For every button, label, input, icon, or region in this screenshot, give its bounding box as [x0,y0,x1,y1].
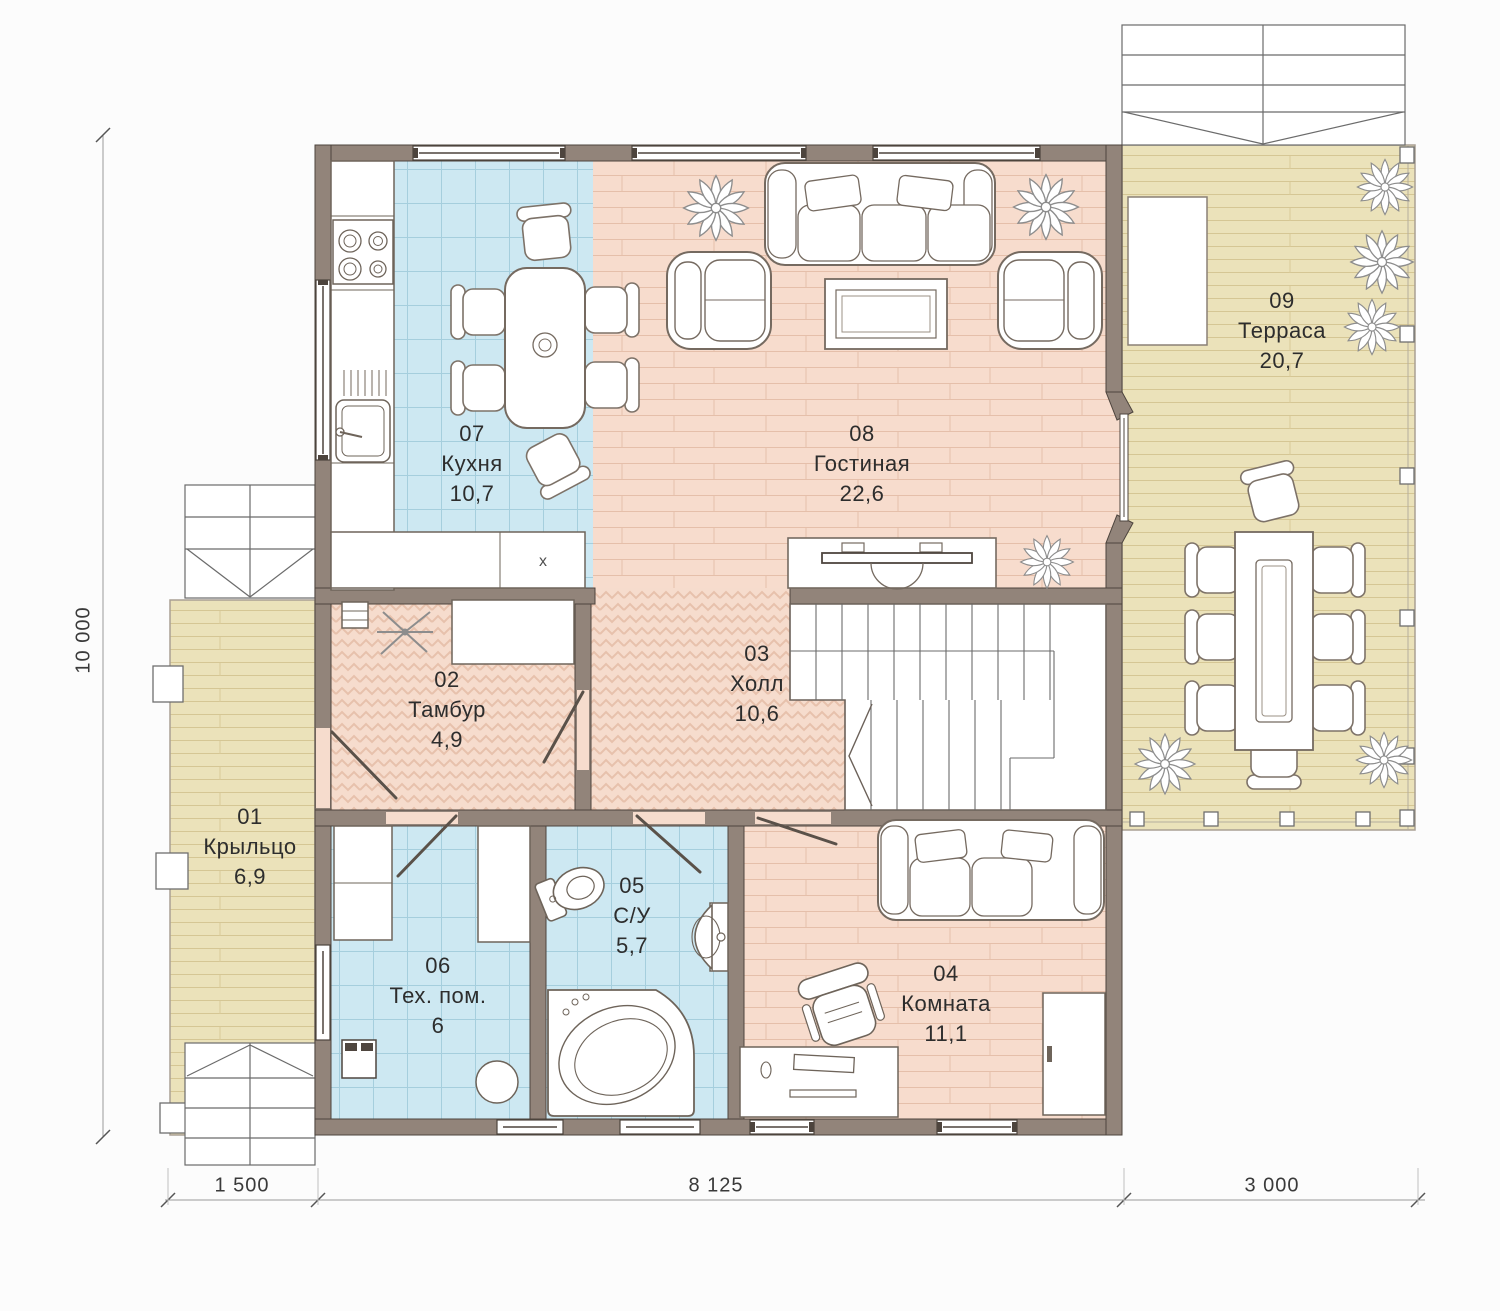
room-label-tech: 06 Тех. пом. 6 [348,954,528,1037]
room-area: 10,7 [450,482,495,505]
armchair-right [998,252,1102,349]
room-name: Тех. пом. [389,984,486,1007]
room-area: 22,6 [840,482,885,505]
room-number: 04 [933,962,958,985]
room-area: 6 [432,1014,445,1037]
washing-machine [342,1040,376,1078]
dimension-width-porch: 1 500 [214,1175,269,1198]
window-tech-bottom [497,1120,563,1134]
boiler-tank [476,1061,518,1103]
tambur-box [342,602,368,628]
room-area: 20,7 [1260,349,1305,372]
passage-floor [595,588,790,604]
room-label-room: 04 Комната 11,1 [856,962,1036,1045]
room-area: 6,9 [234,865,266,888]
room-label-porch: 01 Крыльцо 6,9 [160,805,340,888]
kitchen-unit-marker: x [539,553,547,571]
room-number: 05 [619,874,644,897]
stove [333,220,393,284]
dimension-width-terrace: 3 000 [1244,1175,1299,1198]
window-bedroom-bottom-1 [750,1120,814,1134]
room-number: 06 [425,954,450,977]
dimension-width-house: 8 125 [688,1175,743,1198]
tech-cabinet-right [478,826,530,942]
sofa-bedroom [878,820,1104,920]
tv-console [788,538,996,589]
room-number: 09 [1269,289,1294,312]
room-area: 5,7 [616,934,648,957]
wardrobe [1043,993,1105,1115]
room-name: Комната [901,992,991,1015]
room-name: Терраса [1238,319,1326,342]
room-label-wc: 05 С/У 5,7 [542,874,722,957]
room-label-terrace: 09 Терраса 20,7 [1192,289,1372,372]
porch-steps-bottom [185,1043,315,1165]
room-name: Кухня [441,452,502,475]
room-label-living: 08 Гостиная 22,6 [772,422,952,505]
room-area: 10,6 [735,702,780,725]
room-name: Гостиная [814,452,910,475]
window-living-top-2 [873,146,1040,160]
tambur-cabinet [452,600,574,664]
window-bath-bottom [620,1120,700,1134]
room-number: 07 [459,422,484,445]
room-name: Крыльцо [203,835,296,858]
window-living-top-1 [632,146,806,160]
room-number: 01 [237,805,262,828]
room-number: 02 [434,668,459,691]
porch-steps-top [185,485,315,598]
room-name: Холл [730,672,784,695]
window-tech-left [316,945,330,1040]
window-kitchen-top [413,146,565,160]
room-label-tambur: 02 Тамбур 4,9 [357,668,537,751]
bathtub [543,988,694,1123]
terrace-door-glazing [1120,414,1128,521]
room-name: Тамбур [408,698,486,721]
window-kitchen-left [316,280,330,460]
terrace-table [1235,532,1313,750]
desk [740,1047,898,1117]
room-label-hall: 03 Холл 10,6 [667,642,847,725]
room-number: 03 [744,642,769,665]
coffee-table [825,279,947,349]
sofa-living [765,163,995,265]
room-area: 4,9 [431,728,463,751]
terrace-steps [1122,25,1405,145]
room-label-kitchen: 07 Кухня 10,7 [382,422,562,505]
room-number: 08 [849,422,874,445]
room-area: 11,1 [924,1022,967,1045]
dimension-height-total: 10 000 [73,606,96,673]
window-bedroom-bottom-2 [937,1120,1017,1134]
floor-plan-page: 01 Крыльцо 6,9 02 Тамбур 4,9 03 Холл 10,… [0,0,1500,1311]
armchair-left [667,252,771,349]
room-name: С/У [613,904,650,927]
